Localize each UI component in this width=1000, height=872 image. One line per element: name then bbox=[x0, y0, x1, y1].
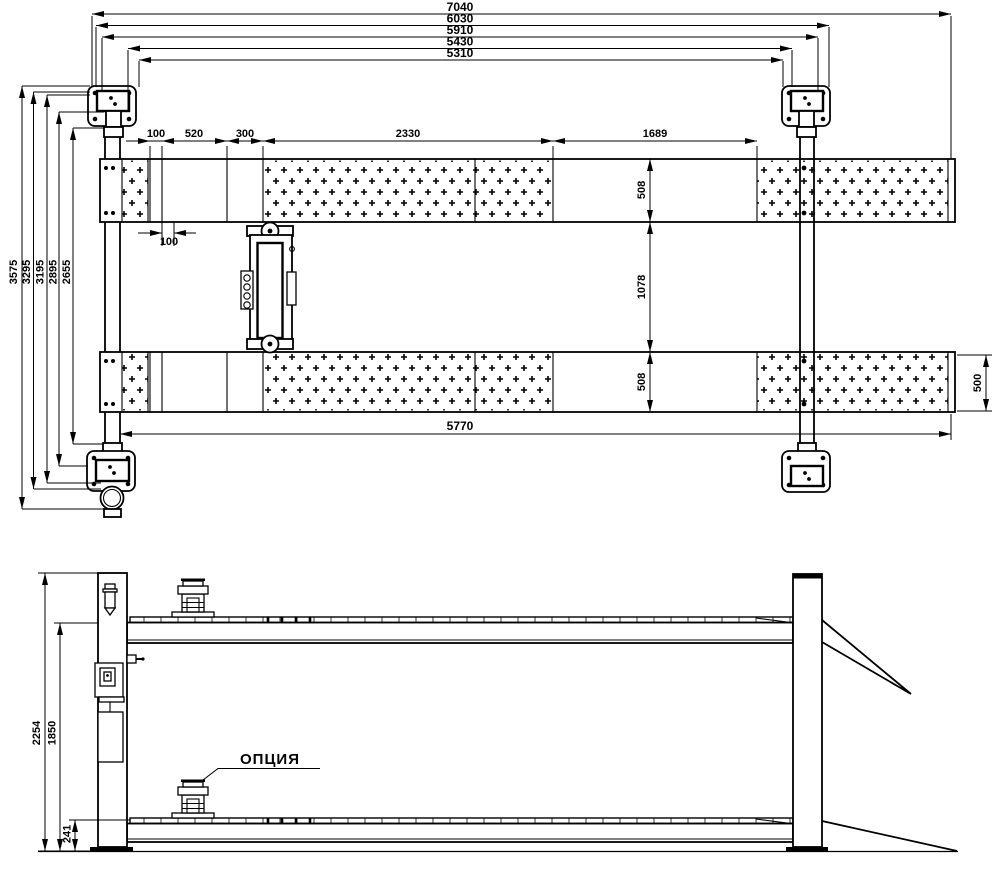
dim-chain-5: 1689 bbox=[643, 128, 667, 140]
dim-runway-width-bottom: 508 bbox=[636, 373, 648, 391]
dim-chain-3: 300 bbox=[236, 128, 254, 140]
dim-right-width: 500 bbox=[972, 374, 984, 392]
option-label: ОПЦИЯ bbox=[240, 751, 300, 768]
runway-front bbox=[100, 159, 955, 222]
control-box bbox=[95, 663, 123, 697]
dim-chain-4: 2330 bbox=[396, 128, 420, 140]
dim-left-3: 3195 bbox=[35, 260, 47, 284]
jacking-beam-plan bbox=[241, 223, 296, 353]
dim-offset: 100 bbox=[160, 236, 178, 248]
dim-base-length: 5770 bbox=[447, 419, 474, 433]
dim-left-4: 2895 bbox=[48, 260, 60, 284]
dim-height-raised: 1850 bbox=[47, 721, 59, 745]
runway-rear bbox=[100, 352, 955, 412]
dim-track-gap: 1078 bbox=[636, 275, 648, 299]
dim-runway-width-top: 508 bbox=[636, 181, 648, 199]
dim-top-5: 5310 bbox=[447, 46, 474, 60]
oil-tank bbox=[98, 712, 123, 762]
drawing-svg: 7040 6030 5910 5430 5310 100 520 300 233… bbox=[0, 0, 1000, 872]
dim-chain-2: 520 bbox=[185, 128, 203, 140]
dim-left-5: 2655 bbox=[61, 260, 73, 284]
lift-technical-drawing: 7040 6030 5910 5430 5310 100 520 300 233… bbox=[0, 0, 1000, 872]
side-post-right bbox=[786, 574, 828, 852]
dim-height-lowered: 241 bbox=[62, 825, 74, 843]
dim-left-1: 3575 bbox=[8, 260, 20, 284]
dim-chain-1: 100 bbox=[147, 128, 165, 140]
dim-height-total: 2254 bbox=[31, 720, 43, 745]
dim-left-2: 3295 bbox=[21, 260, 33, 284]
post-bottom-right bbox=[782, 443, 830, 492]
